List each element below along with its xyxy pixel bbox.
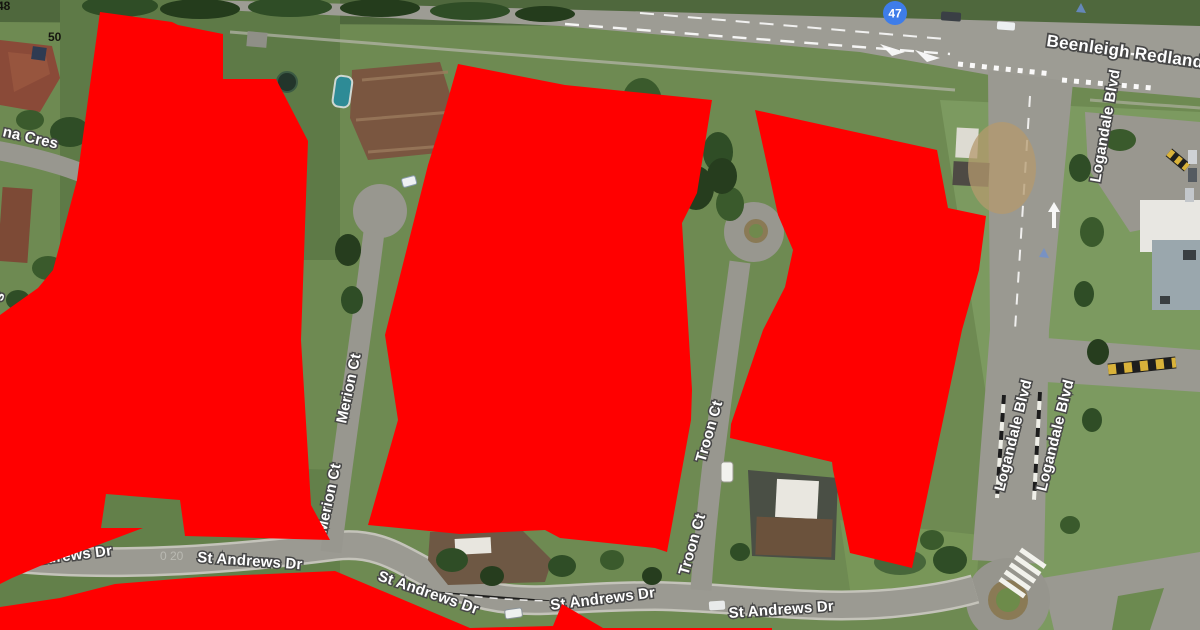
route-shield-47: 47 [883, 1, 907, 25]
house-number-50: 50 [48, 30, 62, 44]
route-shield-number: 47 [888, 7, 902, 21]
imagery-watermark: 0 20 [160, 549, 184, 563]
house-number-48: 48 [0, 0, 11, 13]
map-canvas[interactable]: 0 20 Beenleigh Redland B Logandale Blvd … [0, 0, 1200, 630]
map-viewport[interactable]: 0 20 Beenleigh Redland B Logandale Blvd … [0, 0, 1200, 630]
